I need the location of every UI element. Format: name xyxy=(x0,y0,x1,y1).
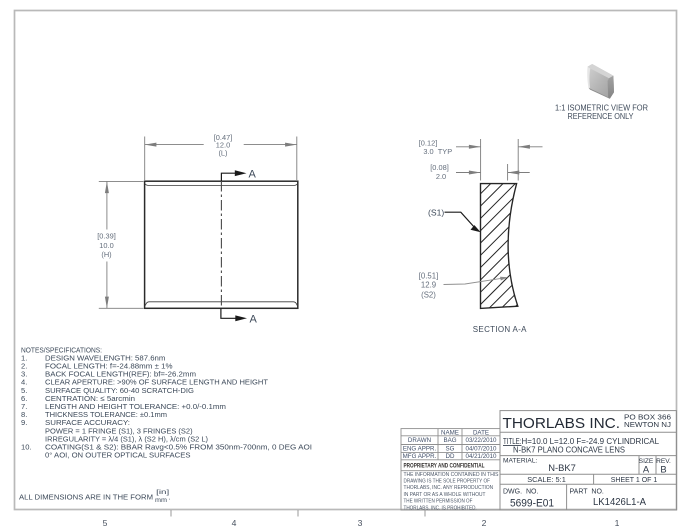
svg-text:LK1426L1-A: LK1426L1-A xyxy=(593,497,646,508)
svg-text:SCALE: 5:1: SCALE: 5:1 xyxy=(527,475,566,484)
svg-text:.: . xyxy=(169,492,171,501)
svg-text:03/22/2010: 03/22/2010 xyxy=(466,437,498,444)
svg-text:[0.08]: [0.08] xyxy=(430,163,449,172)
svg-text:2: 2 xyxy=(482,518,487,528)
svg-text:DATE: DATE xyxy=(473,429,489,436)
svg-text:THORLABS, INC. IS PROHIBITED.: THORLABS, INC. IS PROHIBITED. xyxy=(404,505,477,511)
svg-text:04/21/2010: 04/21/2010 xyxy=(466,453,498,460)
svg-text:[0.12]: [0.12] xyxy=(419,138,438,147)
svg-text:0° AOI, ON OUTER OPTICAL SURFA: 0° AOI, ON OUTER OPTICAL SURFACES xyxy=(45,451,191,460)
svg-text:ALL DIMENSIONS ARE IN THE FORM: ALL DIMENSIONS ARE IN THE FORM xyxy=(19,492,153,501)
svg-text:DRAWN: DRAWN xyxy=(408,437,431,444)
svg-text:A: A xyxy=(250,313,258,325)
svg-text:NAME: NAME xyxy=(441,429,459,436)
svg-text:A: A xyxy=(249,168,257,180)
svg-text:PART NO.: PART NO. xyxy=(570,489,604,496)
svg-text:mm: mm xyxy=(155,497,167,504)
svg-text:10.: 10. xyxy=(21,443,32,452)
svg-text:(H): (H) xyxy=(101,250,111,259)
svg-text:5699-E01: 5699-E01 xyxy=(510,497,554,509)
svg-text:SECTION A-A: SECTION A-A xyxy=(473,325,527,334)
svg-text:[0.51]: [0.51] xyxy=(419,271,439,280)
svg-text:9.: 9. xyxy=(21,418,27,427)
svg-text:(L): (L) xyxy=(218,149,227,158)
svg-text:DD: DD xyxy=(446,453,455,460)
svg-text:(S1): (S1) xyxy=(428,208,444,218)
svg-text:3: 3 xyxy=(358,518,363,528)
svg-text:THORLABS, INC. ANY REPRODUCTI: THORLABS, INC. ANY REPRODUCTION xyxy=(404,485,494,491)
svg-text:NEWTON NJ: NEWTON NJ xyxy=(624,420,671,429)
svg-text:THE WRITTEN PERMISSION OF: THE WRITTEN PERMISSION OF xyxy=(404,499,473,505)
svg-text:MATERIAL:: MATERIAL: xyxy=(503,458,537,465)
svg-text:10.0: 10.0 xyxy=(99,241,113,250)
svg-text:ENG APPR.: ENG APPR. xyxy=(403,446,437,453)
svg-text:A: A xyxy=(643,463,650,474)
svg-text:2.0: 2.0 xyxy=(436,172,446,181)
svg-text:12.9: 12.9 xyxy=(421,281,436,290)
svg-text:3.0 TYP: 3.0 TYP xyxy=(423,147,452,156)
svg-text:B: B xyxy=(660,463,666,474)
svg-text:4: 4 xyxy=(232,518,237,528)
svg-text:1: 1 xyxy=(615,518,620,528)
svg-text:DWG. NO.: DWG. NO. xyxy=(503,489,538,496)
svg-text:[0.39]: [0.39] xyxy=(97,232,116,241)
svg-text:THORLABS INC.: THORLABS INC. xyxy=(503,415,621,432)
svg-text:DRAWING IS THE SOLE PROPERTY O: DRAWING IS THE SOLE PROPERTY OF xyxy=(404,479,491,485)
svg-text:BAG: BAG xyxy=(443,437,456,444)
svg-text:N-BK7 PLANO CONCAVE LENS: N-BK7 PLANO CONCAVE LENS xyxy=(513,445,625,455)
svg-text:(S2): (S2) xyxy=(421,290,436,299)
svg-text:REFERENCE ONLY: REFERENCE ONLY xyxy=(568,112,635,121)
svg-text:SHEET 1 OF 1: SHEET 1 OF 1 xyxy=(611,477,658,484)
svg-text:THE INFORMATION CONTAINED IN T: THE INFORMATION CONTAINED IN THIS xyxy=(404,472,499,478)
svg-text:PROPRIETARY AND CONFIDENTIAL: PROPRIETARY AND CONFIDENTIAL xyxy=(404,463,485,470)
svg-text:MFG APPR.: MFG APPR. xyxy=(403,453,437,460)
svg-text:04/07/2010: 04/07/2010 xyxy=(466,446,498,453)
svg-text:N-BK7: N-BK7 xyxy=(548,462,576,473)
svg-text:IN PART OR AS A WHOLE WITHOUT: IN PART OR AS A WHOLE WITHOUT xyxy=(404,492,486,498)
svg-text:5: 5 xyxy=(103,518,108,528)
svg-text:SG: SG xyxy=(446,446,455,453)
